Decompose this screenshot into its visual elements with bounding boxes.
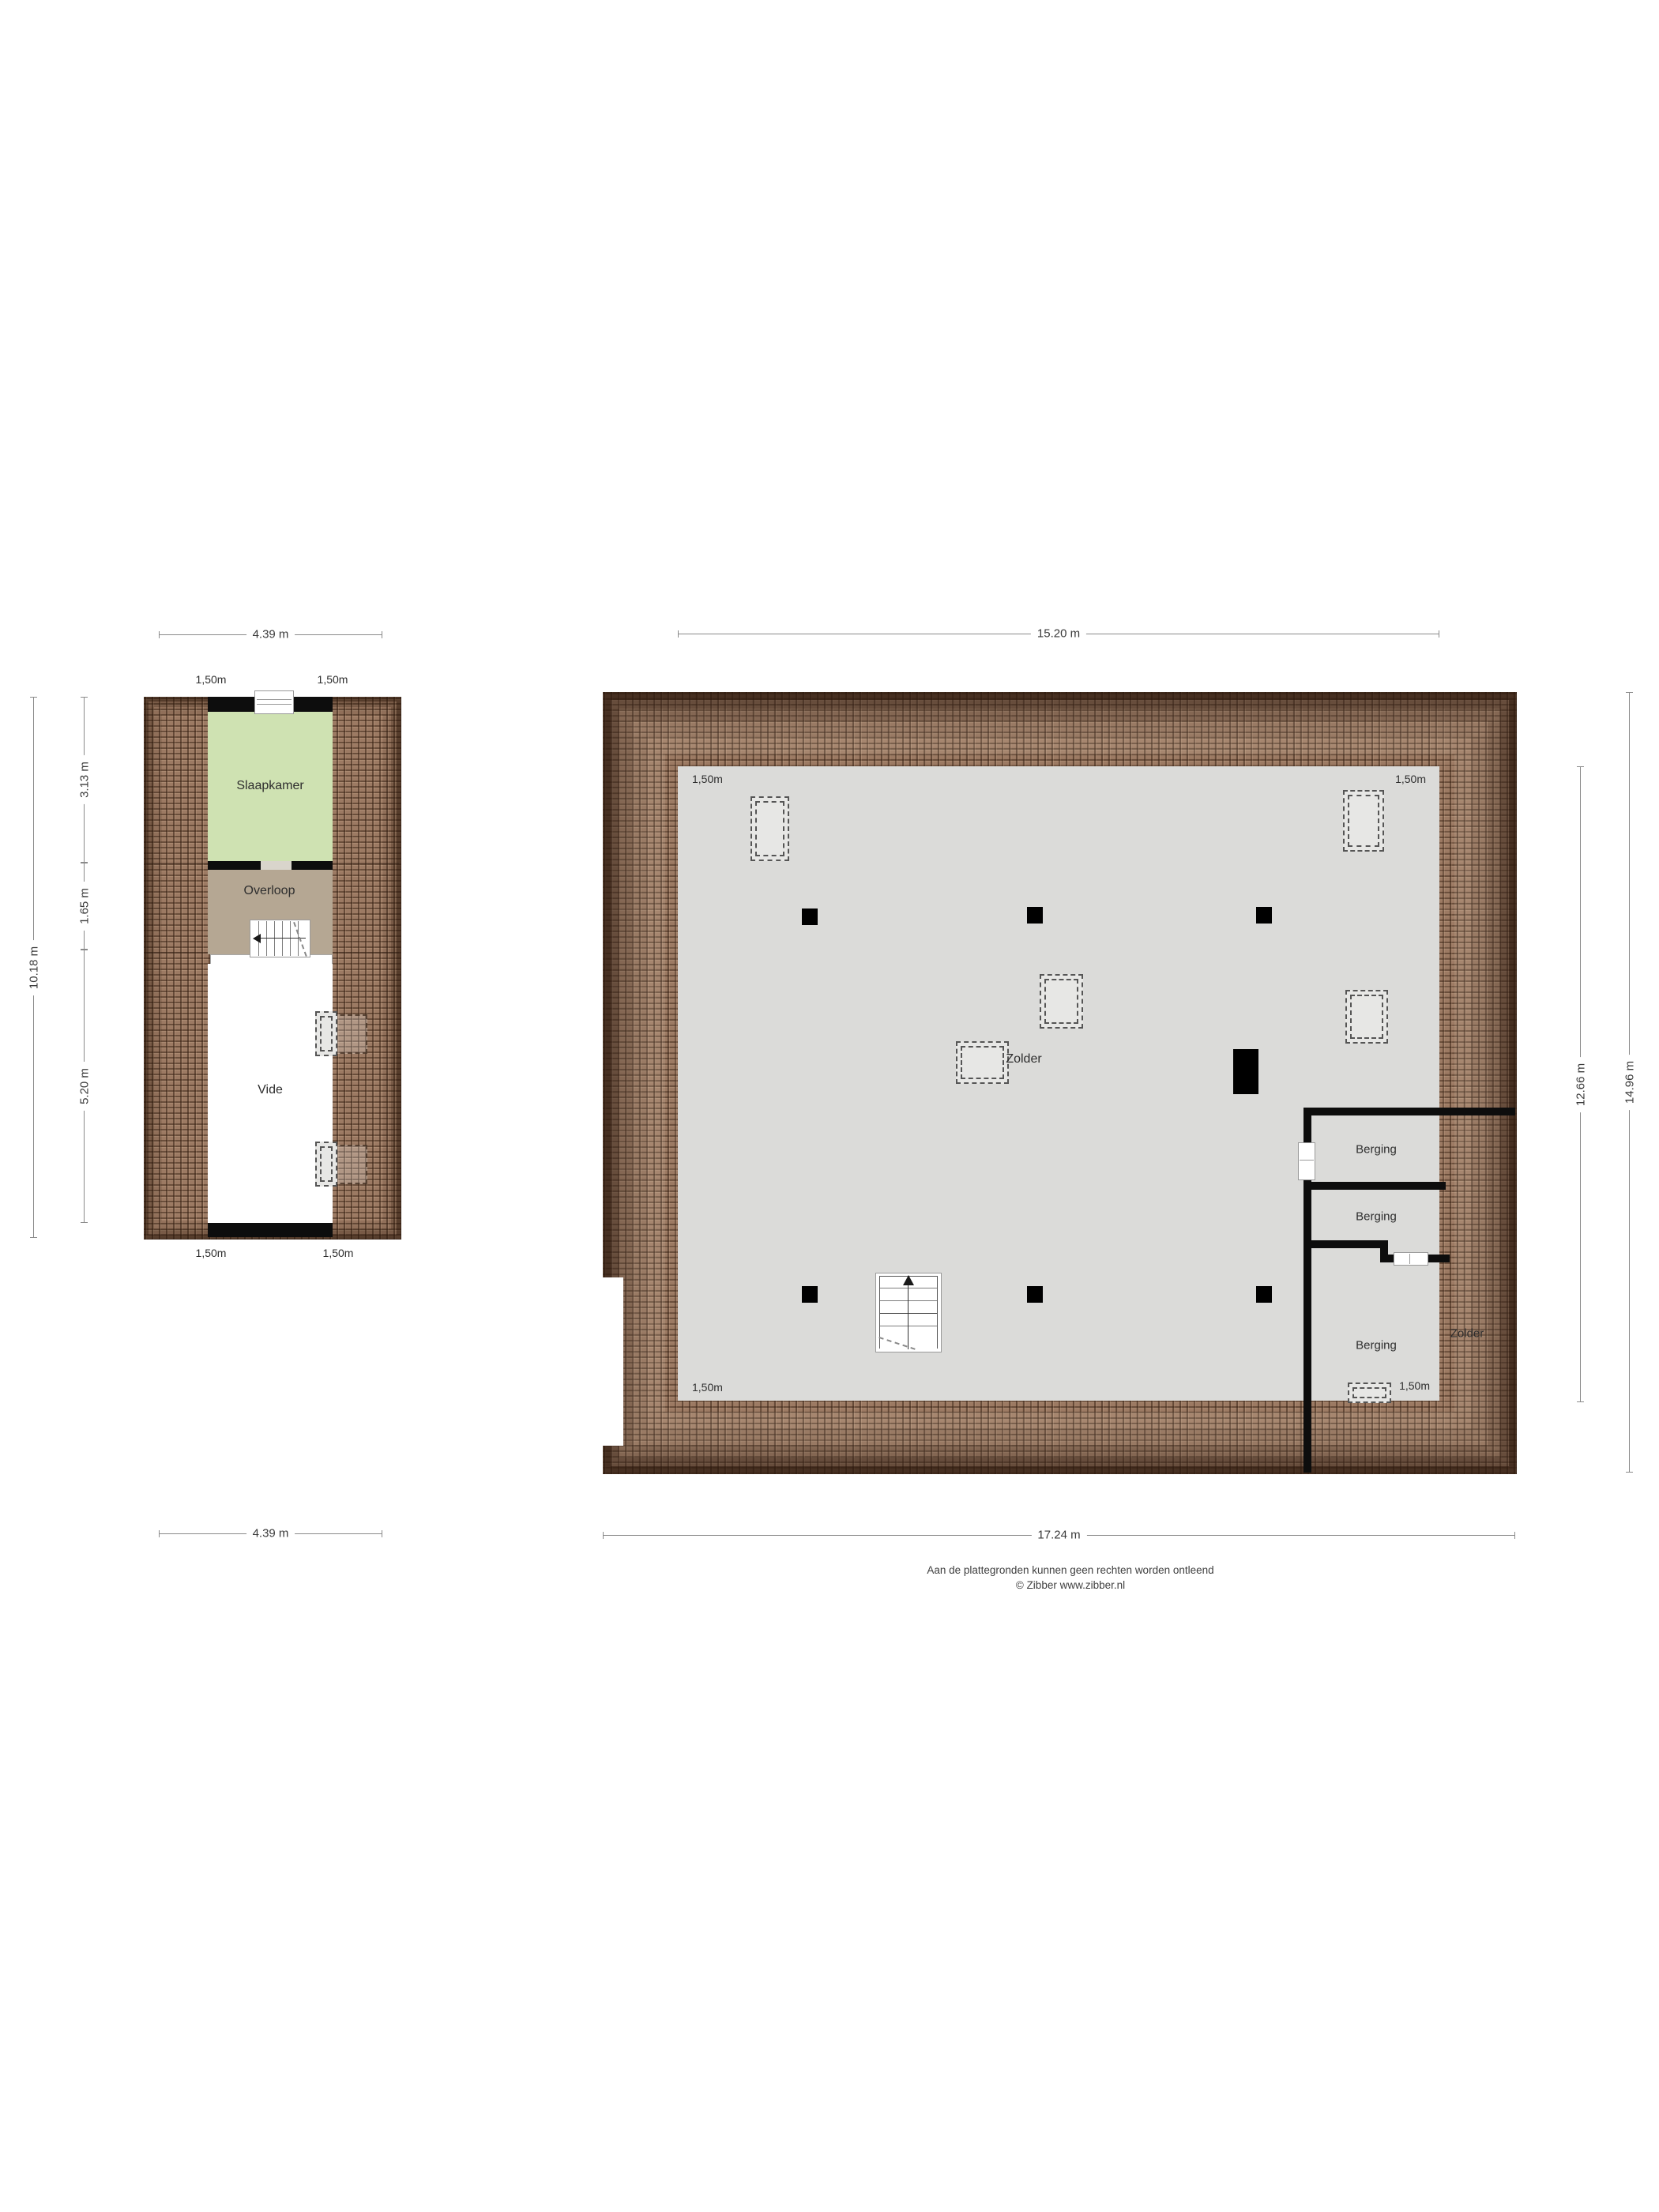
right-knee-top-left: 1,50m	[692, 773, 723, 785]
column	[802, 908, 818, 925]
berging2-label: Berging	[1356, 1210, 1397, 1224]
right-dim-top-label: 15.20 m	[1031, 627, 1086, 641]
berging2-berging3-wall	[1303, 1240, 1388, 1248]
berging3-door	[1394, 1252, 1428, 1266]
zolder-skylight-top-left	[750, 796, 789, 861]
right-knee-bottom-left: 1,50m	[692, 1381, 723, 1394]
slaapkamer-window	[254, 690, 294, 714]
right-roof-notch	[602, 1277, 623, 1446]
stairs-down-arrow-icon	[253, 934, 261, 943]
right-knee-berging: 1,50m	[1399, 1379, 1430, 1392]
left-dim-bottom-label: 4.39 m	[246, 1527, 295, 1540]
left-dim-seg-overloop: 1.65 m	[84, 863, 85, 950]
left-knee-top-right: 1,50m	[318, 673, 348, 686]
footer-line-2: © Zibber www.zibber.nl	[927, 1578, 1213, 1593]
berging3-label: Berging	[1356, 1339, 1397, 1352]
right-dim-top: 15.20 m	[678, 634, 1439, 634]
berging3-skylight	[1348, 1382, 1391, 1403]
left-dim-seg-slaapkamer: 3.13 m	[84, 697, 85, 863]
berging1-door	[1298, 1142, 1315, 1180]
berging3-door-wall-right	[1426, 1255, 1450, 1262]
column	[1027, 907, 1043, 924]
footer-disclaimer: Aan de plattegronden kunnen geen rechten…	[927, 1563, 1213, 1593]
room-zolder	[678, 766, 1439, 1401]
left-dim-bottom: 4.39 m	[159, 1533, 382, 1534]
left-dim-total-label: 10.18 m	[28, 939, 41, 995]
footer-line-1: Aan de plattegronden kunnen geen rechten…	[927, 1563, 1213, 1578]
zolder-skylight-center	[1040, 974, 1083, 1029]
overloop-label: Overloop	[244, 884, 295, 898]
vide-roofwindow-2	[315, 1142, 337, 1187]
left-dim-seg-overloop-label: 1.65 m	[78, 882, 92, 931]
berging2-berging3-jog-wall	[1380, 1240, 1388, 1262]
column	[1256, 1286, 1272, 1303]
berging1-berging2-wall	[1303, 1182, 1446, 1190]
stairs-cut-line	[293, 922, 307, 957]
left-stairs	[250, 920, 310, 957]
right-dim-inner: 12.66 m	[1580, 766, 1581, 1402]
zolder-skylight-right	[1345, 990, 1388, 1044]
berging1-label: Berging	[1356, 1143, 1397, 1157]
left-dim-seg-vide: 5.20 m	[84, 950, 85, 1223]
zolder-skylight-center-left	[956, 1041, 1009, 1084]
berging-top-wall	[1303, 1108, 1515, 1115]
left-dim-top: 4.39 m	[159, 634, 382, 635]
left-knee-bottom-left: 1,50m	[196, 1247, 227, 1259]
floorplan-page: 4.39 m 1,50m 1,50m Slaapkamer Overloop V…	[0, 0, 1659, 2212]
left-dim-total: 10.18 m	[33, 697, 34, 1238]
left-dim-top-label: 4.39 m	[246, 628, 295, 641]
right-dim-inner-label: 12.66 m	[1574, 1056, 1588, 1112]
vide-bottom-wall	[208, 1223, 333, 1237]
right-dim-bottom-label: 17.24 m	[1031, 1529, 1086, 1542]
left-dim-seg-vide-label: 5.20 m	[78, 1062, 92, 1111]
zolder-right-label: Zolder	[1450, 1327, 1484, 1341]
left-dim-seg-slaapkamer-label: 3.13 m	[78, 755, 92, 804]
stairs-up-arrow-icon	[903, 1275, 914, 1285]
right-dim-outer: 14.96 m	[1629, 692, 1630, 1473]
chimney	[1233, 1049, 1258, 1094]
right-dim-bottom: 17.24 m	[603, 1535, 1515, 1536]
vide-roofwindow-1	[315, 1011, 337, 1056]
slaapkamer-label: Slaapkamer	[236, 779, 303, 793]
stairs-direction-line	[908, 1285, 908, 1349]
zolder-skylight-top-right	[1343, 790, 1384, 852]
right-stairs	[875, 1273, 942, 1352]
column	[802, 1286, 818, 1303]
column	[1027, 1286, 1043, 1303]
left-knee-top-left: 1,50m	[196, 673, 227, 686]
left-knee-bottom-right: 1,50m	[323, 1247, 354, 1259]
slaapkamer-door-opening	[261, 861, 292, 870]
column	[1256, 907, 1272, 924]
zolder-label: Zolder	[1006, 1052, 1041, 1066]
right-knee-top-right: 1,50m	[1395, 773, 1426, 785]
right-dim-outer-label: 14.96 m	[1623, 1055, 1637, 1110]
vide-roofwindow-ext-2	[333, 1145, 367, 1184]
vide-roofwindow-ext-1	[333, 1014, 367, 1054]
vide-label: Vide	[258, 1083, 283, 1097]
